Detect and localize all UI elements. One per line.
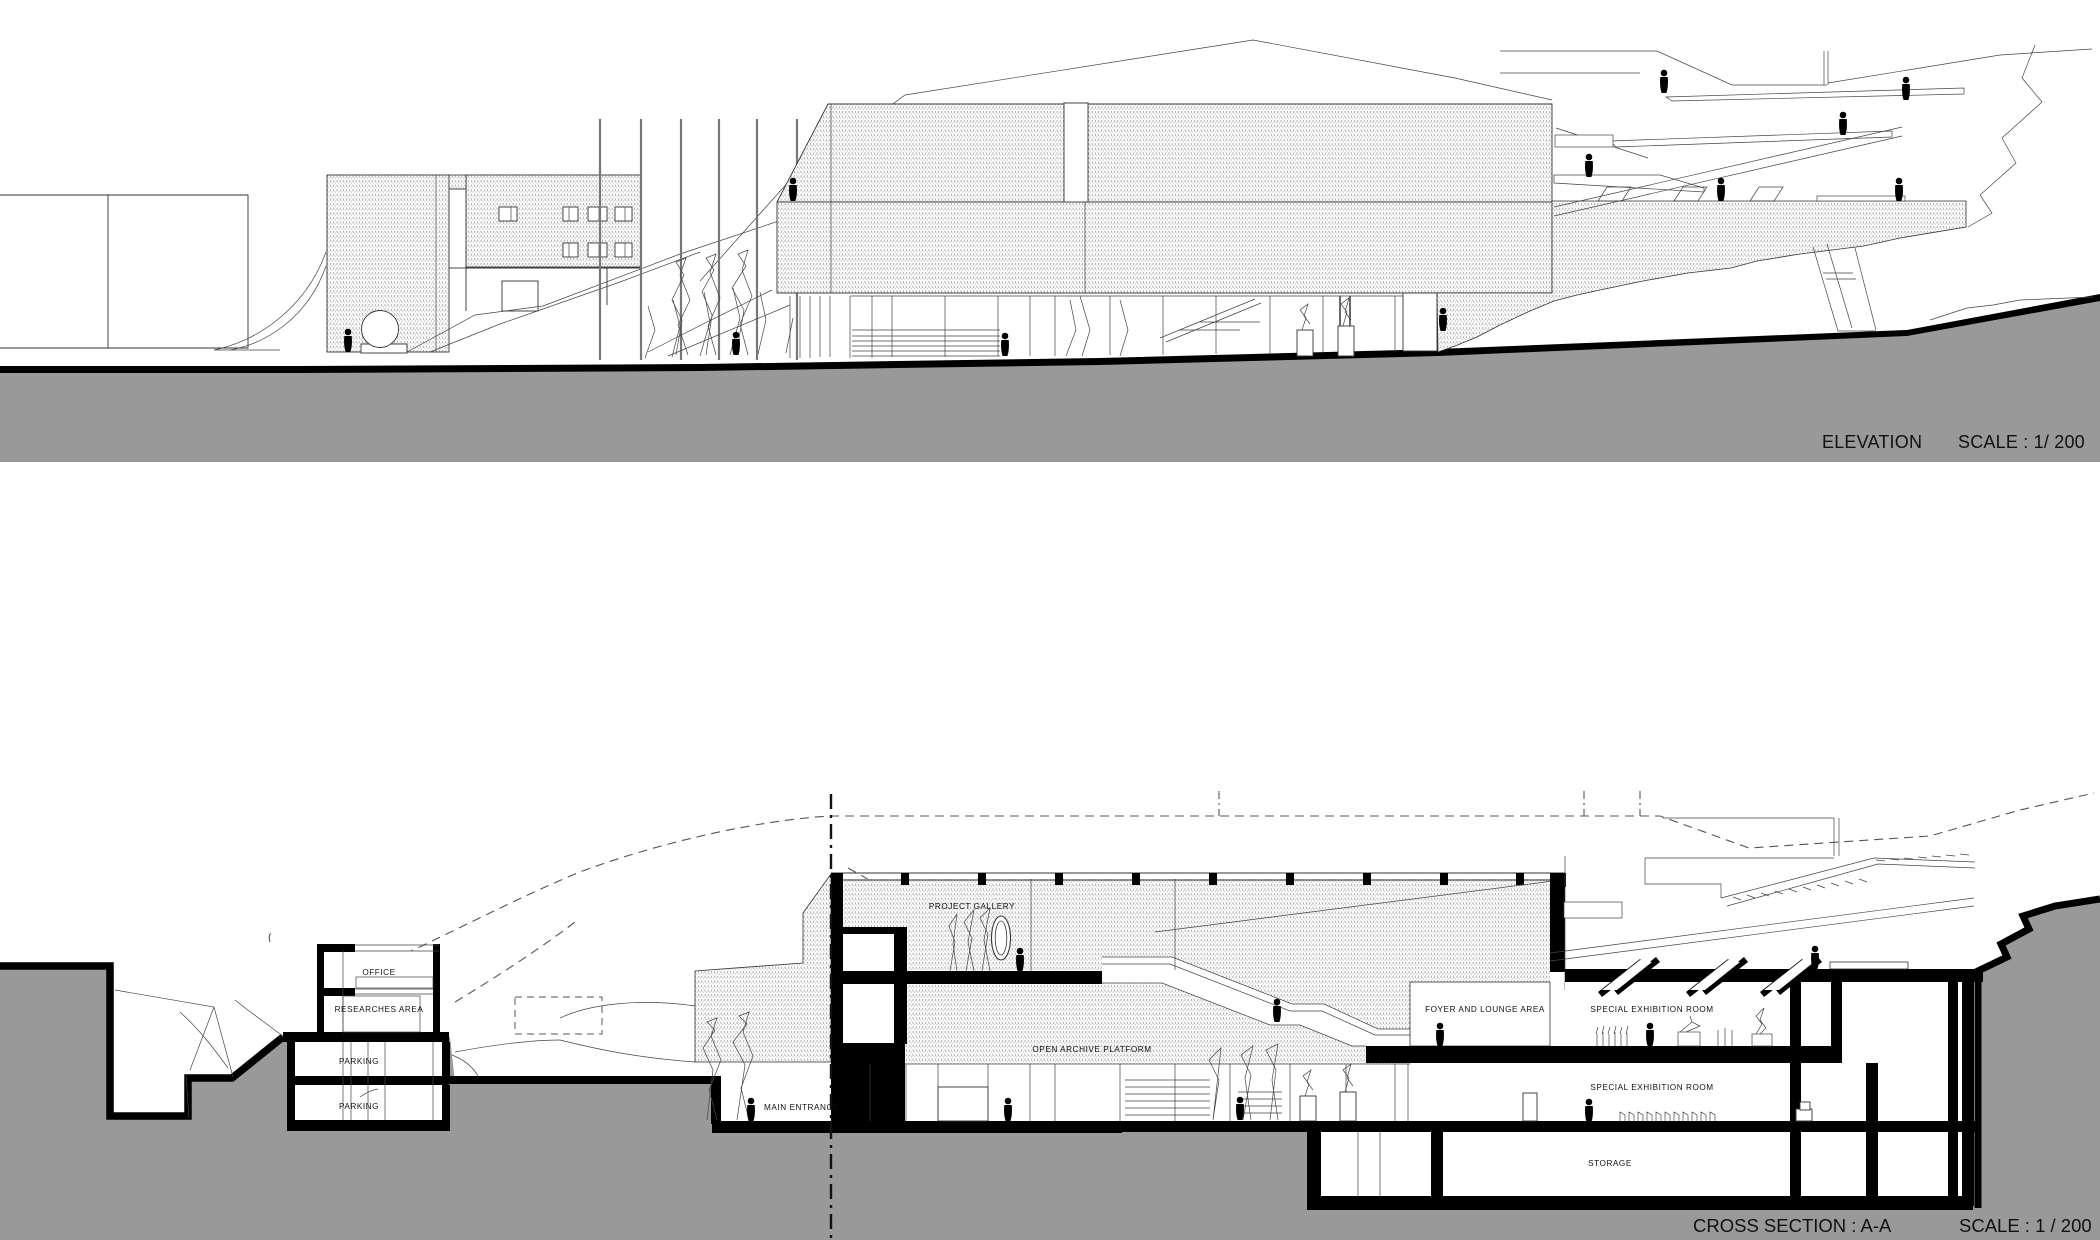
svg-text:MAIN ENTRANCE: MAIN ENTRANCE [764,1103,839,1112]
svg-text:PROJECT GALLERY: PROJECT GALLERY [929,902,1015,911]
svg-text:RESEARCHES AREA: RESEARCHES AREA [335,1005,424,1014]
svg-text:ELEVATION: ELEVATION [1822,432,1922,452]
svg-text:OPEN ARCHIVE PLATFORM: OPEN ARCHIVE PLATFORM [1032,1045,1151,1054]
svg-text:SPECIAL EXHIBITION ROOM: SPECIAL EXHIBITION ROOM [1590,1005,1713,1014]
svg-text:CROSS SECTION : A-A: CROSS SECTION : A-A [1693,1215,1892,1236]
svg-text:STORAGE: STORAGE [1588,1159,1632,1168]
svg-text:OFFICE: OFFICE [362,968,395,977]
svg-text:SPECIAL EXHIBITION ROOM: SPECIAL EXHIBITION ROOM [1590,1083,1713,1092]
svg-text:PARKING: PARKING [339,1057,379,1066]
svg-text:SCALE : 1/ 200: SCALE : 1/ 200 [1958,432,2085,452]
svg-text:FOYER AND LOUNGE AREA: FOYER AND LOUNGE AREA [1425,1005,1545,1014]
svg-text:SCALE : 1 / 200: SCALE : 1 / 200 [1959,1215,2092,1236]
svg-text:PARKING: PARKING [339,1102,379,1111]
